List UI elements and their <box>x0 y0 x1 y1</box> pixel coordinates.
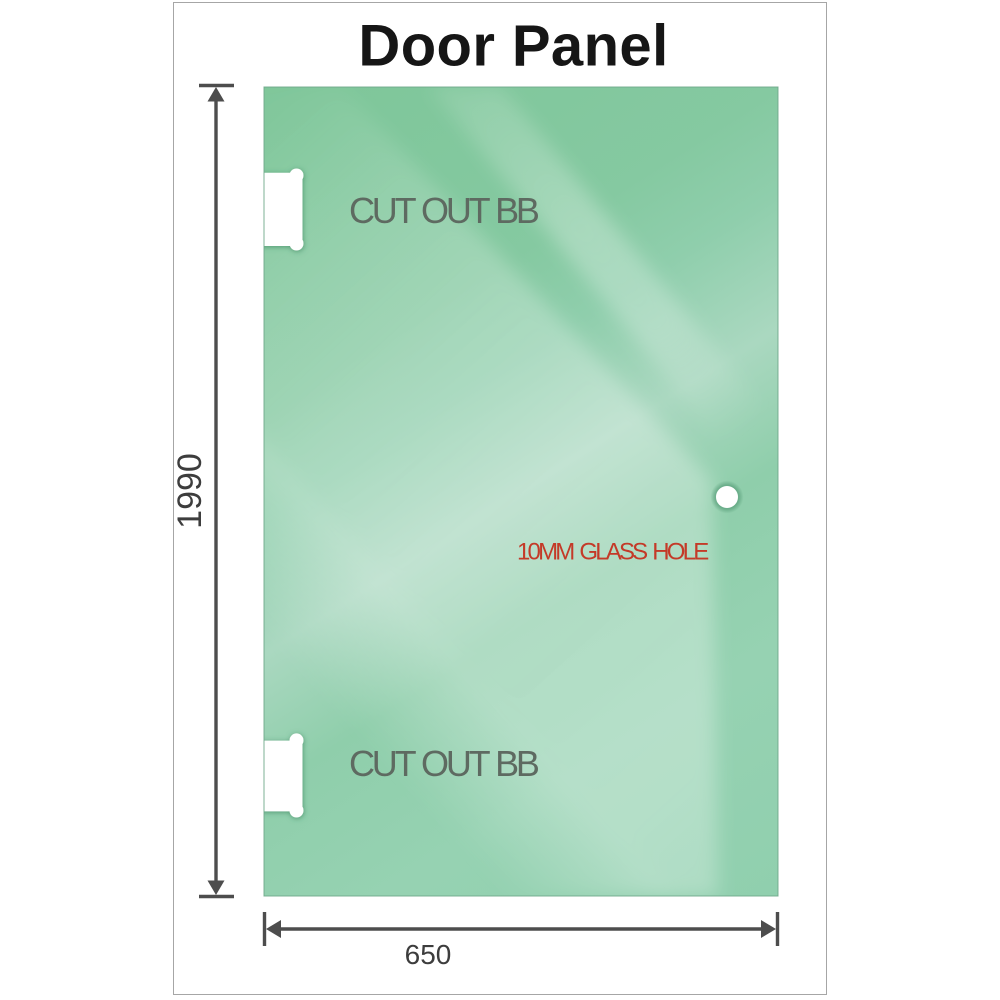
svg-text:10MM GLASS HOLE: 10MM GLASS HOLE <box>517 539 708 566</box>
svg-text:1990: 1990 <box>171 453 209 529</box>
svg-text:CUT OUT BB: CUT OUT BB <box>349 190 539 231</box>
svg-text:650: 650 <box>405 939 452 970</box>
svg-text:CUT OUT BB: CUT OUT BB <box>349 743 539 784</box>
svg-text:Door Panel: Door Panel <box>358 14 668 79</box>
